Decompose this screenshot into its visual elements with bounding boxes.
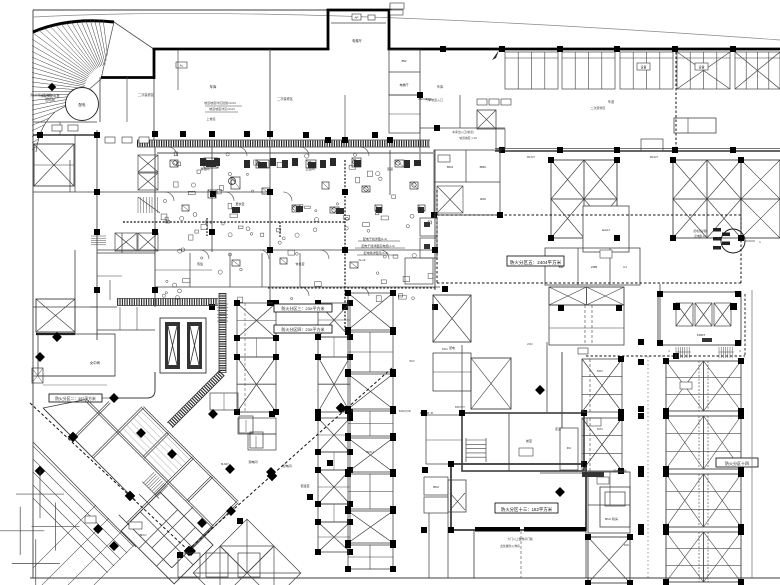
svg-text:二次装修区: 二次装修区 — [138, 92, 155, 97]
svg-text:上坡道: 上坡道 — [206, 116, 215, 121]
svg-text:配电: 配电 — [449, 346, 455, 350]
svg-text:坡道坡度 1:10: 坡道坡度 1:10 — [459, 136, 477, 140]
svg-text:配电间详图: 配电间详图 — [614, 469, 627, 473]
svg-text:坡道坡度详见建施10-03: 坡道坡度详见建施10-03 — [204, 100, 236, 105]
svg-text:防火分区五：2404平方米: 防火分区五：2404平方米 — [510, 259, 562, 266]
svg-text:AL1F: AL1F — [358, 258, 365, 262]
svg-text:防火分区二：302平方米: 防火分区二：302平方米 — [55, 396, 96, 401]
svg-text:坡道坡度详见10-03: 坡道坡度详见10-03 — [209, 106, 235, 111]
svg-text:弱电间: 弱电间 — [248, 459, 257, 464]
svg-text:二次装修区: 二次装修区 — [590, 105, 605, 110]
svg-text:车库: 车库 — [210, 84, 217, 89]
svg-text:设备: 设备 — [640, 64, 646, 69]
svg-text:2MB: 2MB — [591, 265, 597, 269]
svg-text:2MU: 2MU — [527, 342, 533, 346]
svg-text:走道: 走道 — [387, 166, 393, 171]
svg-text:机房: 机房 — [612, 516, 618, 521]
svg-text:ItJ: ItJ — [623, 265, 627, 269]
svg-text:配电干线详图见电施(1-4): 配电干线详图见电施(1-4) — [361, 243, 394, 248]
svg-text:前室: 前室 — [526, 438, 532, 443]
svg-text:BMU: BMU — [442, 347, 448, 351]
svg-text:BMJ: BMJ — [433, 485, 439, 489]
svg-text:防火分区十三：182平方米: 防火分区十三：182平方米 — [501, 506, 553, 513]
svg-text:电梯厅: 电梯厅 — [352, 38, 362, 43]
svg-text:BhU: BhU — [605, 517, 611, 521]
svg-text:值班室: 值班室 — [300, 483, 309, 488]
svg-text:配电: 配电 — [79, 102, 86, 107]
svg-text:车道: 车道 — [608, 99, 615, 104]
svg-text:防火分区十四: 防火分区十四 — [725, 460, 749, 466]
svg-text:见电施-12: 见电施-12 — [694, 234, 706, 238]
svg-text:二次装修区: 二次装修区 — [277, 96, 294, 101]
svg-text:此处做防火卷帘: 此处做防火卷帘 — [500, 544, 520, 548]
svg-text:配电室详图: 配电室详图 — [694, 229, 707, 233]
svg-text:BMU: BMU — [624, 543, 630, 547]
svg-text:BMU: BMU — [597, 369, 603, 373]
svg-text:值班: 值班 — [197, 261, 203, 266]
svg-text:防火分区四：23X平方米: 防火分区四：23X平方米 — [281, 326, 324, 332]
svg-text:消火栓箱暗装详图: 消火栓箱暗装详图 — [30, 93, 51, 97]
svg-text:车库出入口(坡道): 车库出入口(坡道) — [452, 130, 474, 134]
svg-text:AP: AP — [354, 16, 358, 20]
svg-text:休息室: 休息室 — [295, 261, 304, 266]
svg-text:配电箱详图见(A-3): 配电箱详图见(A-3) — [364, 250, 389, 255]
svg-text:M1527: M1527 — [527, 155, 536, 159]
svg-text:M1527: M1527 — [650, 155, 659, 159]
svg-text:BhKJ: BhKJ — [140, 533, 147, 537]
svg-text:配电间: 配电间 — [282, 463, 291, 468]
svg-text:BMU: BMU — [480, 165, 487, 169]
svg-text:BMJ: BMJ — [447, 165, 454, 169]
svg-text:B160(7)3F: B160(7)3F — [399, 409, 412, 413]
svg-text:B#K60?: B#K60? — [455, 405, 465, 409]
svg-text:更衣室: 更衣室 — [235, 201, 244, 206]
svg-text:车库: 车库 — [437, 84, 444, 89]
svg-text:AL: AL — [180, 64, 184, 68]
svg-text:KRMT: KRMT — [697, 333, 706, 337]
svg-text:电梯厅: 电梯厅 — [399, 82, 408, 87]
svg-text:B-b07: B-b07 — [221, 462, 229, 466]
svg-text:FtU: FtU — [567, 446, 572, 450]
svg-text:配电间: 配电间 — [45, 97, 55, 102]
svg-text:EAAJ: EAAJ — [602, 228, 610, 232]
svg-text:AN2UENK: AN2UENK — [418, 97, 431, 101]
svg-text:卫生间: 卫生间 — [305, 166, 314, 171]
svg-text:设备: 设备 — [698, 64, 704, 69]
svg-text:防火分区三：23X平方米: 防火分区三：23X平方米 — [281, 305, 324, 311]
svg-text:BMU: BMU — [597, 427, 603, 431]
svg-text:女中间: 女中间 — [90, 360, 101, 365]
svg-text:淋浴间: 淋浴间 — [200, 166, 209, 171]
svg-text:大门以上做卷帘门箱: 大门以上做卷帘门箱 — [507, 537, 532, 541]
svg-text:4MU: 4MU — [480, 197, 486, 201]
svg-text:BW: BW — [402, 59, 407, 63]
svg-text:B60: B60 — [410, 359, 415, 363]
svg-text:配电干线详图(1-4): 配电干线详图(1-4) — [363, 236, 387, 241]
